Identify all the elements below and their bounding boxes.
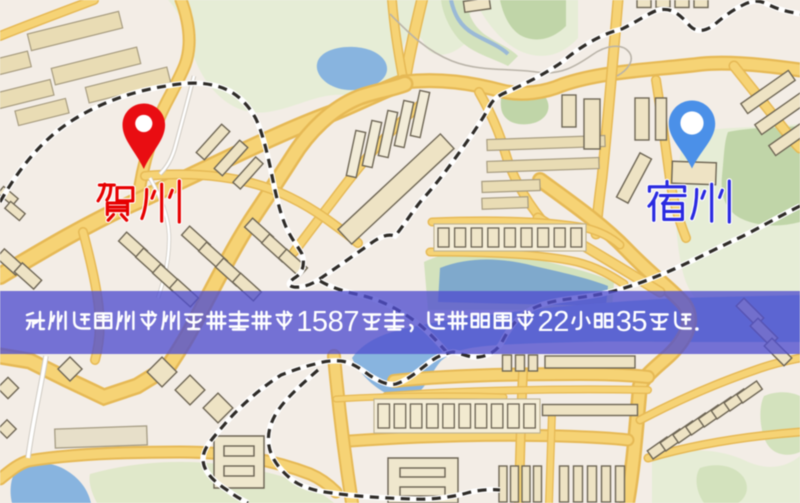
svg-text:35: 35: [616, 306, 647, 338]
svg-text:1587: 1587: [296, 306, 359, 338]
svg-text:22: 22: [538, 306, 569, 338]
